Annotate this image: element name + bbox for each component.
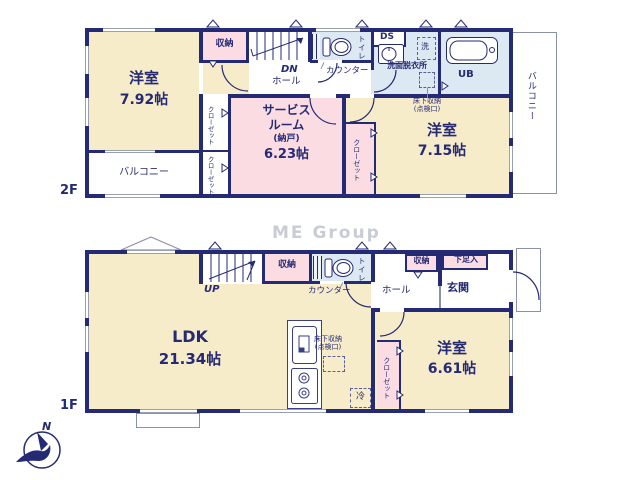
counter-1f-label: カウンター [308, 287, 351, 296]
underfloor-label-1f: 床下収納 (点検口) [304, 336, 352, 351]
door-arc [222, 65, 248, 91]
wall [371, 308, 380, 312]
washroom-label: 洗面脱衣所 [376, 62, 438, 71]
window [85, 292, 89, 318]
compass-north-label: N [42, 420, 51, 433]
vent-marker-icon [383, 241, 397, 250]
window [140, 409, 197, 413]
window [103, 28, 155, 32]
window [509, 318, 513, 340]
closet-b-label: クローゼット [206, 155, 213, 195]
floor-2-label: 2F [60, 184, 78, 198]
toilet-icon [322, 36, 354, 58]
unit-bath-label: UB [458, 69, 474, 80]
door-marker-icon [441, 81, 449, 91]
hall-2f-label: ホール [272, 77, 301, 87]
stairs-dn-label: DN [281, 64, 298, 75]
window [85, 46, 89, 74]
window [316, 28, 360, 32]
storage-2f-label: 収納 [203, 40, 246, 50]
door-gap [371, 282, 375, 308]
vent-marker-icon [355, 241, 369, 250]
vent-marker-icon [419, 19, 433, 28]
closet-c-label: クローゼット [352, 130, 360, 190]
stairs-2f-icon [249, 32, 308, 60]
ds-label: DS [380, 33, 394, 43]
shoe-box: 下足入 [442, 254, 488, 270]
door-marker-icon [413, 271, 423, 279]
door-marker-icon [208, 60, 218, 68]
window [509, 352, 513, 376]
ldk-label: LDK 21.34帖 [134, 328, 246, 367]
window [425, 409, 469, 413]
window [509, 146, 513, 172]
hall-storage-box: 収納 [405, 254, 438, 272]
vent-marker-icon [289, 19, 303, 28]
vent-marker-icon [206, 19, 220, 28]
floor-plan: ME Group バルコニー [0, 0, 640, 480]
underfloor-label-2f: 床下収納 (点検口) [403, 98, 451, 113]
window [85, 98, 89, 126]
door-arc [374, 70, 396, 92]
storage-1f-label: 収納 [265, 261, 309, 271]
wall [202, 150, 228, 152]
bedroom3-label: 洋室 6.61帖 [396, 340, 508, 377]
window [240, 409, 326, 413]
door-arc [513, 272, 539, 300]
hall-storage-label: 収納 [409, 257, 434, 266]
door-marker-icon [370, 172, 378, 182]
wall [371, 308, 375, 409]
wall [199, 60, 249, 63]
balcony-right-label: バルコニー [525, 71, 535, 121]
bathtub-icon [446, 37, 498, 64]
stairs-up-label: UP [204, 284, 219, 295]
closet-a-label: クローゼット [206, 100, 213, 150]
fridge-box: 冷 [350, 388, 371, 408]
closet-d-label: クローゼット [382, 350, 390, 406]
window [127, 250, 175, 254]
window [105, 194, 160, 198]
wall [371, 254, 375, 282]
vent-marker-icon [208, 241, 222, 250]
bedroom1-label: 洋室 7.92帖 [89, 70, 199, 108]
entrance-label: 玄関 [447, 282, 469, 294]
toilet-counter-surface [313, 256, 322, 279]
wall [199, 94, 203, 194]
wall [342, 94, 346, 194]
bay-window [119, 235, 183, 251]
door-marker-icon [221, 108, 229, 118]
fridge-label: 冷 [356, 393, 365, 403]
door-marker-icon [396, 346, 404, 356]
wall [404, 32, 406, 47]
compass-icon: N [12, 416, 70, 476]
bedroom2-label: 洋室 7.15帖 [386, 122, 498, 159]
window [85, 326, 89, 352]
hall-1f-label: ホール [382, 286, 411, 296]
floor-1-label: 1F [60, 399, 78, 413]
window [509, 112, 513, 138]
toilet-1f-label: トイレ [357, 257, 365, 280]
service-room-label: サービス ルーム (納戸) 6.23帖 [231, 104, 342, 163]
toilet-2f-label: トイレ [357, 35, 365, 59]
balcony-right-2f: バルコニー [511, 32, 557, 194]
wall [404, 308, 513, 312]
wall [309, 254, 312, 284]
toilet-icon [324, 257, 356, 279]
vent-marker-icon [454, 19, 468, 28]
vent-marker-icon [355, 19, 369, 28]
door-arc [350, 98, 374, 122]
window [105, 150, 155, 153]
washer-label: 洗 [421, 43, 429, 52]
door-marker-icon [221, 163, 229, 173]
underfloor-box-2f [419, 72, 435, 88]
entrance-step-line [439, 286, 441, 308]
door-marker-icon [370, 128, 378, 138]
counter-2f-label: カウンター [326, 67, 369, 76]
balcony-left-label: バルコニー [99, 167, 189, 178]
underfloor-box-1f [323, 356, 345, 372]
terrace-step [136, 413, 200, 428]
toilet-counter-surface [312, 34, 320, 59]
floor-2-plan: バルコニー [0, 0, 640, 240]
floor-1-plan: 収納 下足入 UP 収納 [0, 230, 640, 480]
door-arc [380, 312, 404, 336]
door-marker-icon [396, 390, 404, 400]
stove-icon [291, 368, 318, 404]
window [420, 194, 466, 198]
stairs-1f-icon [203, 254, 262, 282]
shoe-box-label: 下足入 [447, 256, 485, 265]
